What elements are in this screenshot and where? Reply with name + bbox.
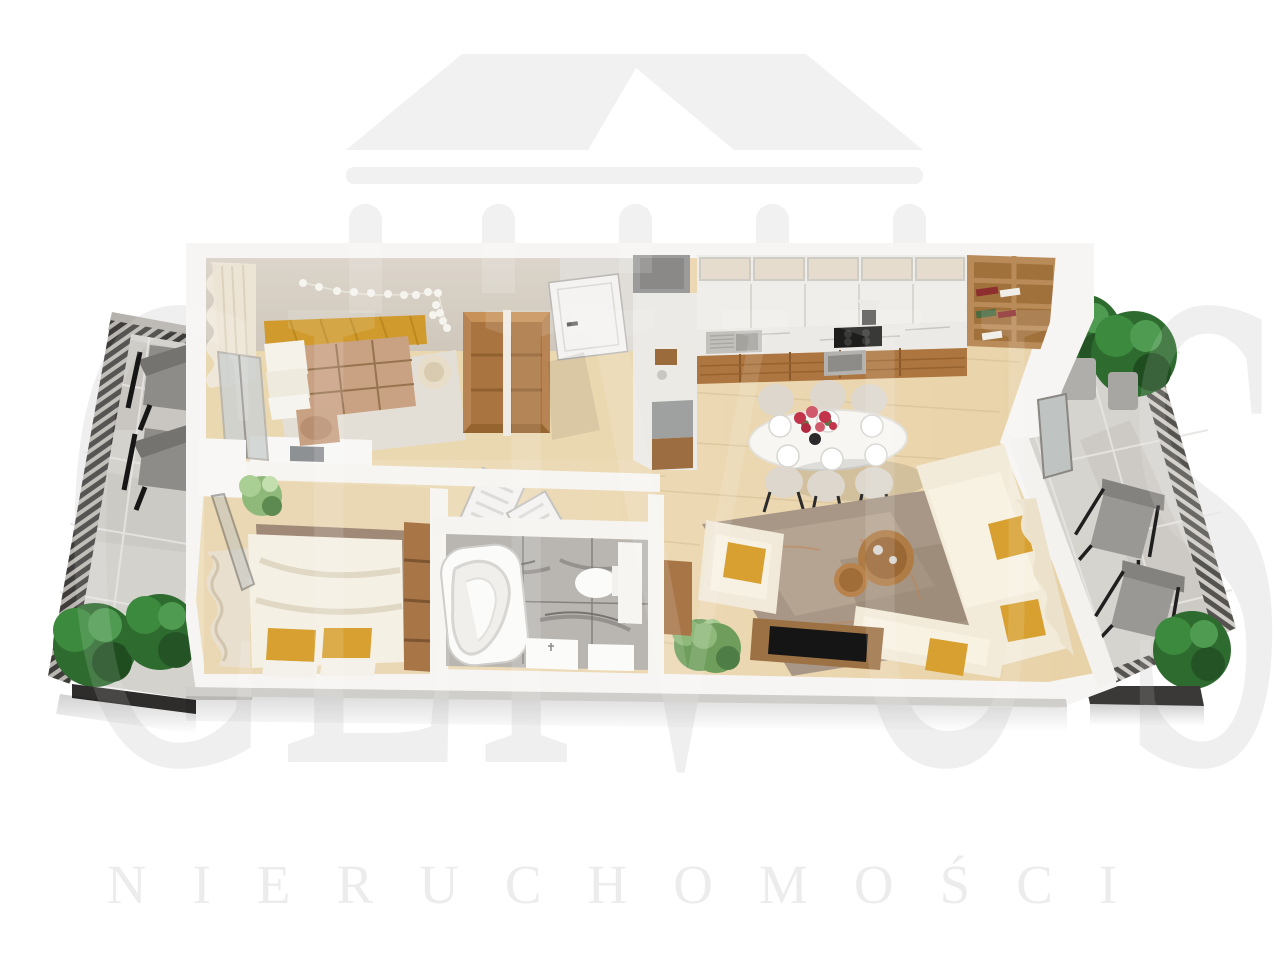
svg-text:S: S [1119,147,1280,912]
svg-text:U: U [833,147,1057,912]
svg-text:I: I [474,147,577,912]
svg-text:C: C [62,147,269,912]
svg-text:L: L [279,147,469,912]
svg-text:V: V [568,147,792,912]
